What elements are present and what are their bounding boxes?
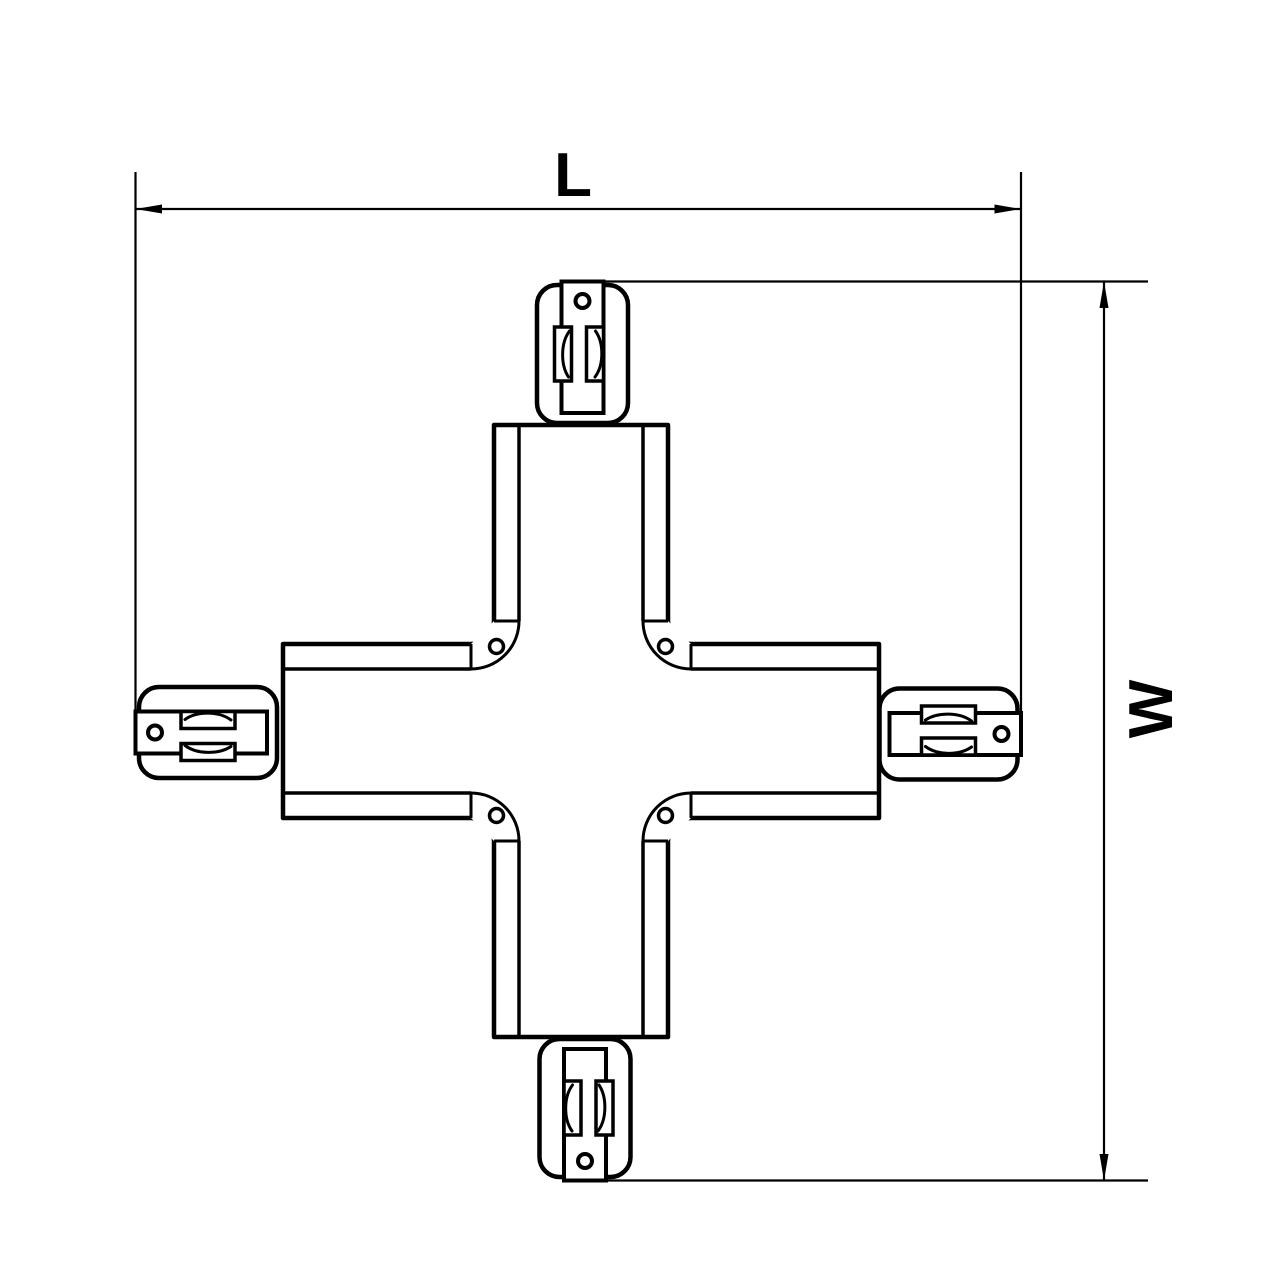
screw-hole: [490, 640, 504, 654]
left-end-connector: [136, 687, 278, 778]
arrow-left-icon: [136, 205, 163, 214]
drawing-canvas: L W: [0, 0, 1280, 1280]
dimension-w-label: W: [1117, 679, 1186, 738]
arrow-down-icon: [1100, 1154, 1109, 1181]
bottom-end-connector: [540, 1039, 631, 1181]
right-end-connector: [880, 689, 1022, 780]
arrow-up-icon: [1100, 282, 1109, 309]
arrow-right-icon: [995, 205, 1022, 214]
cross-connector-body: [283, 425, 879, 1037]
top-end-connector: [537, 282, 628, 424]
cross-body-outline: [283, 425, 879, 1037]
dimension-l-label: L: [554, 141, 592, 210]
technical-drawing: L W: [0, 0, 1280, 1280]
